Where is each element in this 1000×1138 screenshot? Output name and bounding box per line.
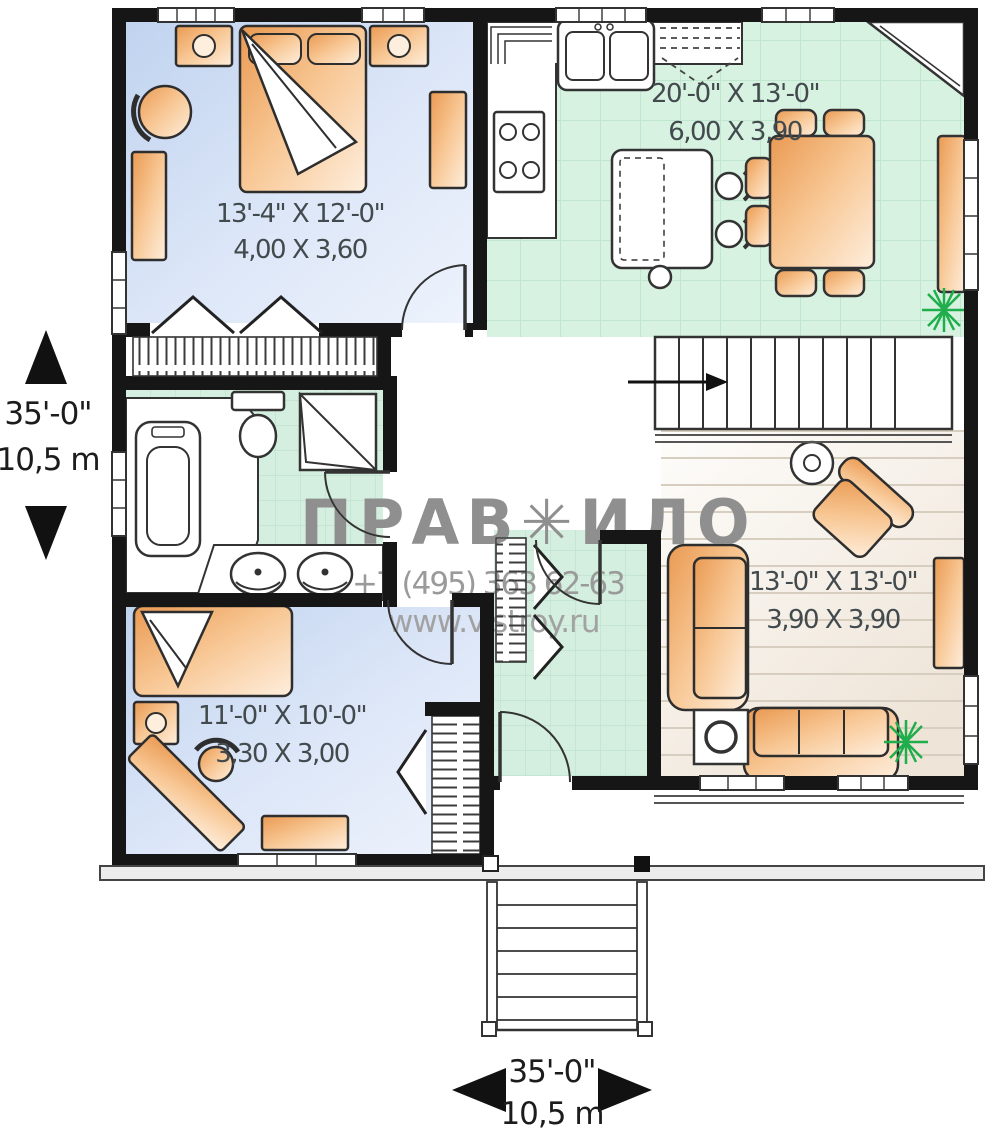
bedroom2-size-imperial: 11'-0" X 10'-0" bbox=[198, 701, 366, 731]
master-bedroom-size-imperial: 13'-4" X 12'-0" bbox=[216, 199, 384, 229]
nightstand-right bbox=[370, 26, 428, 66]
single-bed bbox=[134, 606, 292, 696]
kitchen-plant bbox=[922, 288, 966, 332]
arrow-down-icon bbox=[25, 506, 67, 560]
dresser-right bbox=[430, 92, 466, 188]
deck-post bbox=[634, 856, 650, 872]
arrow-up-icon bbox=[25, 330, 67, 384]
window bbox=[838, 776, 908, 790]
bedroom2-size-metric: 3,30 X 3,00 bbox=[215, 739, 349, 769]
lamp-table bbox=[694, 710, 748, 764]
living-plant bbox=[884, 720, 928, 764]
kitchen-size-imperial: 20'-0" X 13'-0" bbox=[651, 79, 819, 109]
master-bedroom-size-metric: 4,00 X 3,60 bbox=[233, 235, 367, 265]
stairs bbox=[628, 337, 952, 442]
bottom-dimension: 35'-0" 10,5 m bbox=[452, 1054, 652, 1132]
floor-plan-page: 35'-0" 10,5 m 35'-0" 10,5 m 13'-4" X 12'… bbox=[0, 0, 1000, 1138]
sofa bbox=[744, 708, 898, 780]
living-size-metric: 3,90 X 3,90 bbox=[766, 605, 900, 635]
window bbox=[158, 8, 234, 22]
tv-console bbox=[934, 558, 964, 668]
bottom-dimension-imperial: 35'-0" bbox=[508, 1054, 595, 1090]
arrow-right-icon bbox=[598, 1068, 652, 1112]
loveseat bbox=[668, 545, 748, 710]
nightstand-left bbox=[176, 26, 232, 66]
window bbox=[556, 8, 646, 22]
left-dimension-imperial: 35'-0" bbox=[4, 396, 91, 432]
entry-steps bbox=[482, 882, 652, 1036]
window bbox=[112, 252, 126, 334]
window bbox=[362, 8, 424, 22]
bottom-dimension-metric: 10,5 m bbox=[500, 1096, 603, 1132]
deck-post bbox=[483, 856, 498, 871]
kitchen-size-metric: 6,00 X 3,90 bbox=[668, 117, 802, 147]
window bbox=[112, 452, 126, 536]
floor-plan-svg: 35'-0" 10,5 m 35'-0" 10,5 m 13'-4" X 12'… bbox=[0, 0, 1000, 1138]
left-dimension: 35'-0" 10,5 m bbox=[0, 330, 100, 560]
window bbox=[964, 140, 978, 290]
double-vanity bbox=[196, 545, 383, 600]
window bbox=[700, 776, 784, 790]
dresser-bedroom2 bbox=[262, 816, 348, 850]
corner-shower bbox=[300, 394, 376, 470]
stove bbox=[494, 112, 544, 192]
window bbox=[964, 676, 978, 764]
left-dimension-metric: 10,5 m bbox=[0, 442, 100, 478]
round-side-table bbox=[791, 442, 833, 484]
living-size-imperial: 13'-0" X 13'-0" bbox=[749, 567, 917, 597]
kitchen-sink bbox=[558, 20, 654, 90]
buffet-hutch bbox=[938, 136, 966, 292]
arrow-left-icon bbox=[452, 1068, 506, 1112]
master-bed bbox=[240, 26, 366, 192]
window bbox=[762, 8, 834, 22]
dresser-left bbox=[132, 152, 166, 260]
